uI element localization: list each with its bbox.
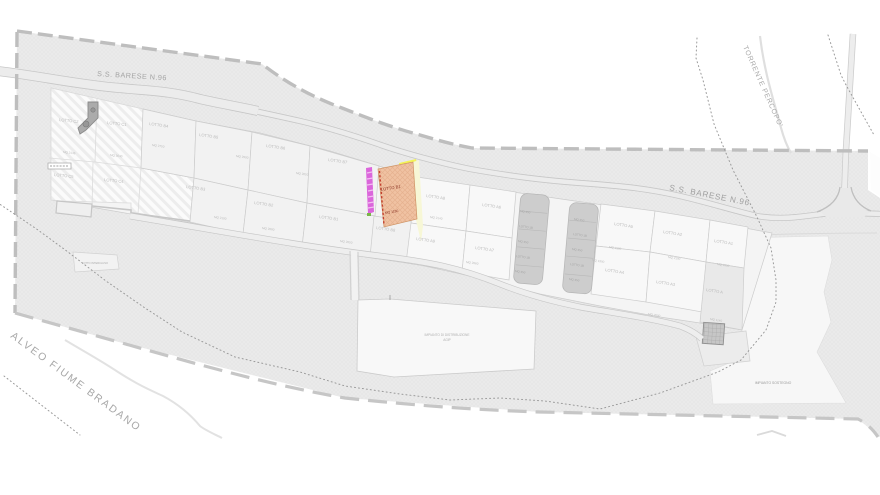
svg-text:AGIP: AGIP	[443, 338, 451, 342]
svg-text:IMPIANTO DI DISTRIBUZIONE: IMPIANTO DI DISTRIBUZIONE	[425, 333, 470, 337]
svg-text:IMPIANTO SOSTEGNO: IMPIANTO SOSTEGNO	[755, 381, 792, 385]
svg-text:LOTTO INTERCLUSO: LOTTO INTERCLUSO	[82, 261, 108, 265]
